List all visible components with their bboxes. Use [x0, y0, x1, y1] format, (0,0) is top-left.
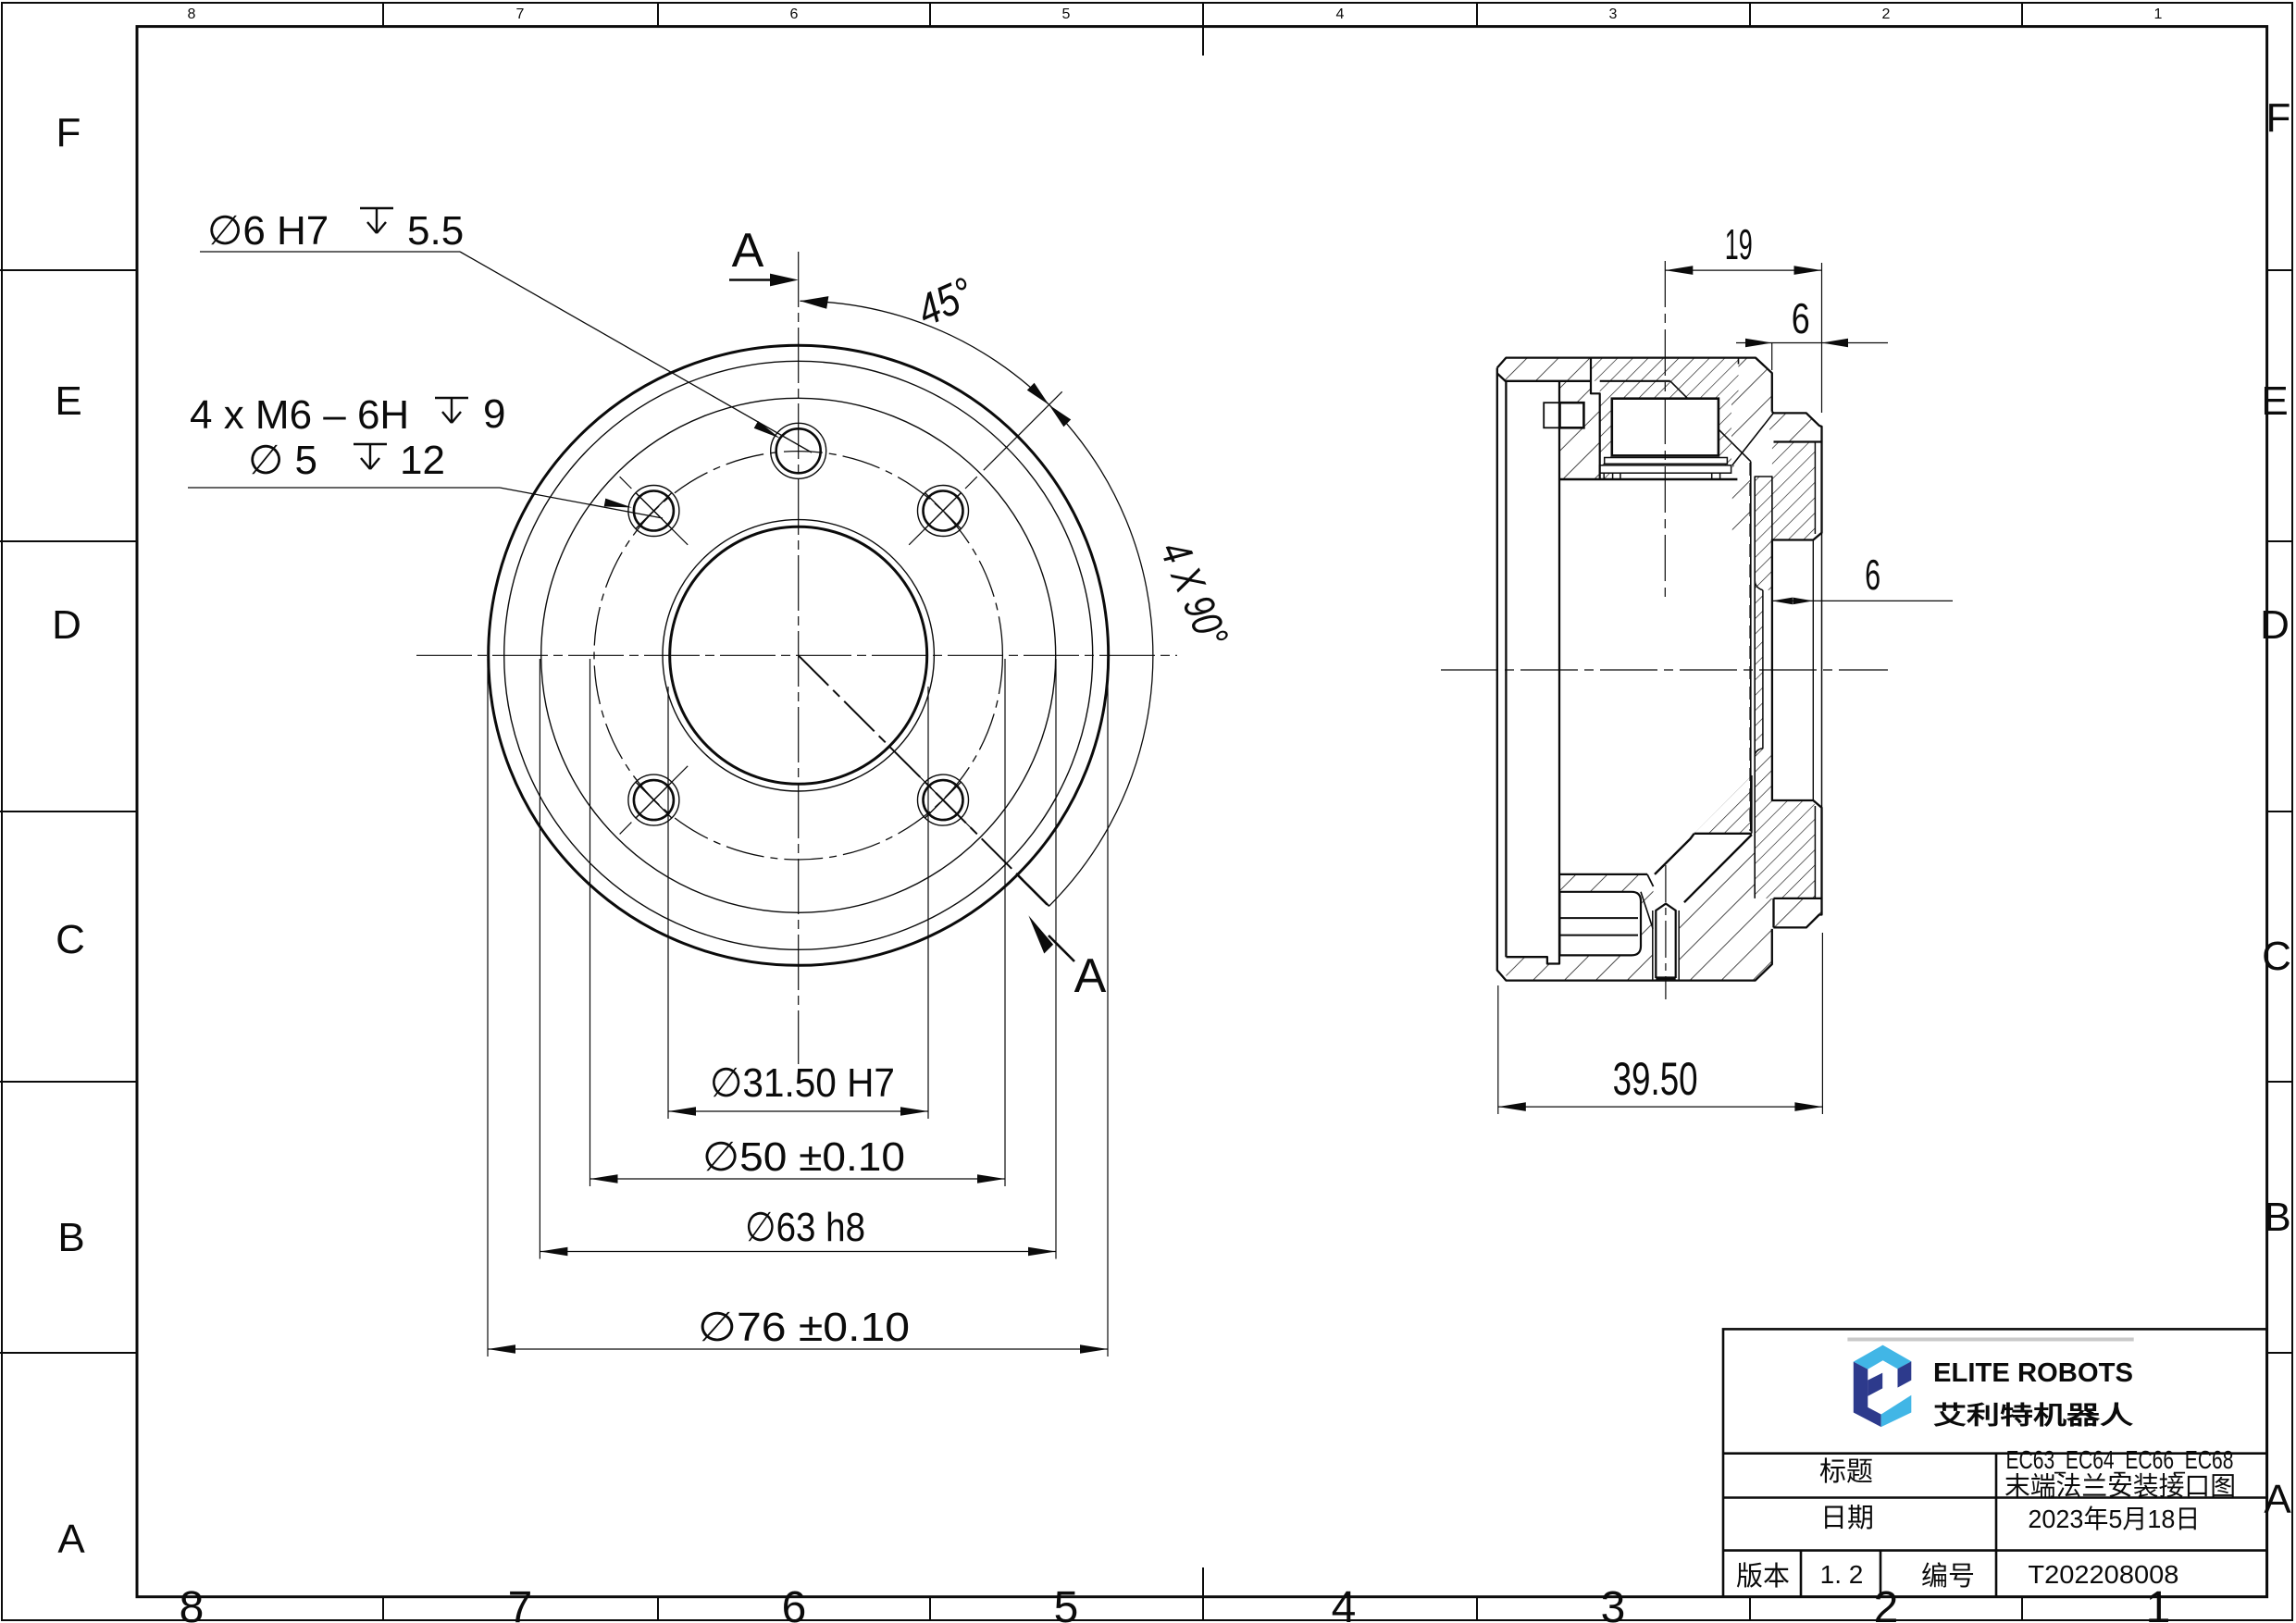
svg-text:F: F	[56, 110, 81, 155]
svg-text:A: A	[57, 1517, 85, 1562]
svg-text:39.50: 39.50	[1613, 1053, 1698, 1105]
svg-text:∅6 H7: ∅6 H7	[207, 208, 329, 254]
svg-text:9: 9	[483, 391, 505, 437]
svg-text:E: E	[55, 378, 81, 424]
svg-text:6: 6	[1792, 294, 1810, 342]
svg-text:3: 3	[1609, 6, 1618, 22]
svg-text:A: A	[1074, 949, 1107, 1003]
svg-text:T202208008: T202208008	[2028, 1560, 2178, 1589]
svg-text:B: B	[57, 1215, 84, 1260]
svg-text:8: 8	[180, 1583, 205, 1623]
svg-text:∅50 ±0.10: ∅50 ±0.10	[702, 1134, 905, 1180]
svg-text:B: B	[2264, 1195, 2290, 1240]
svg-text:标题: 标题	[1819, 1456, 1873, 1487]
svg-text:∅ 5: ∅ 5	[248, 438, 317, 483]
svg-text:1: 1	[2154, 6, 2163, 22]
svg-text:E: E	[2261, 378, 2288, 424]
svg-text:ELITE ROBOTS: ELITE ROBOTS	[1933, 1358, 2133, 1388]
svg-text:C: C	[56, 917, 85, 962]
svg-text:∅63 h8: ∅63 h8	[745, 1205, 865, 1250]
svg-text:编号: 编号	[1921, 1561, 1975, 1592]
svg-text:4 x M6 – 6H: 4 x M6 – 6H	[190, 392, 409, 438]
svg-text:3: 3	[1601, 1583, 1626, 1623]
svg-text:版本: 版本	[1736, 1561, 1790, 1592]
svg-text:6: 6	[790, 6, 799, 22]
svg-text:末端法兰安装接口图: 末端法兰安装接口图	[2004, 1472, 2236, 1501]
svg-text:∅76 ±0.10: ∅76 ±0.10	[698, 1305, 910, 1350]
svg-text:日期: 日期	[1820, 1504, 1874, 1533]
svg-text:艾利特机器人: 艾利特机器人	[1933, 1402, 2133, 1430]
svg-text:2023年5月18日: 2023年5月18日	[2028, 1505, 2200, 1533]
svg-text:6: 6	[782, 1583, 807, 1623]
svg-text:∅31.50 H7: ∅31.50 H7	[710, 1060, 895, 1106]
svg-text:EC63_EC64_EC66_EC68: EC63_EC64_EC66_EC68	[2006, 1445, 2234, 1474]
svg-text:6: 6	[1865, 551, 1880, 599]
svg-text:5.5: 5.5	[407, 208, 464, 254]
svg-text:7: 7	[508, 1583, 533, 1623]
svg-text:D: D	[2260, 602, 2290, 648]
svg-text:C: C	[2262, 934, 2291, 979]
svg-text:2: 2	[1882, 6, 1891, 22]
svg-text:F: F	[2266, 95, 2291, 141]
svg-text:2: 2	[1874, 1583, 1899, 1623]
svg-text:5: 5	[1054, 1583, 1079, 1623]
svg-text:8: 8	[188, 6, 196, 22]
svg-text:12: 12	[400, 438, 445, 483]
svg-text:7: 7	[516, 6, 525, 22]
svg-text:4: 4	[1336, 6, 1345, 22]
svg-text:5: 5	[1062, 6, 1071, 22]
svg-text:19: 19	[1725, 220, 1753, 268]
svg-text:1: 1	[2146, 1583, 2171, 1623]
svg-text:A: A	[732, 224, 764, 278]
svg-text:4: 4	[1332, 1583, 1357, 1623]
svg-text:1. 2: 1. 2	[1820, 1560, 1864, 1589]
svg-text:D: D	[52, 602, 81, 648]
